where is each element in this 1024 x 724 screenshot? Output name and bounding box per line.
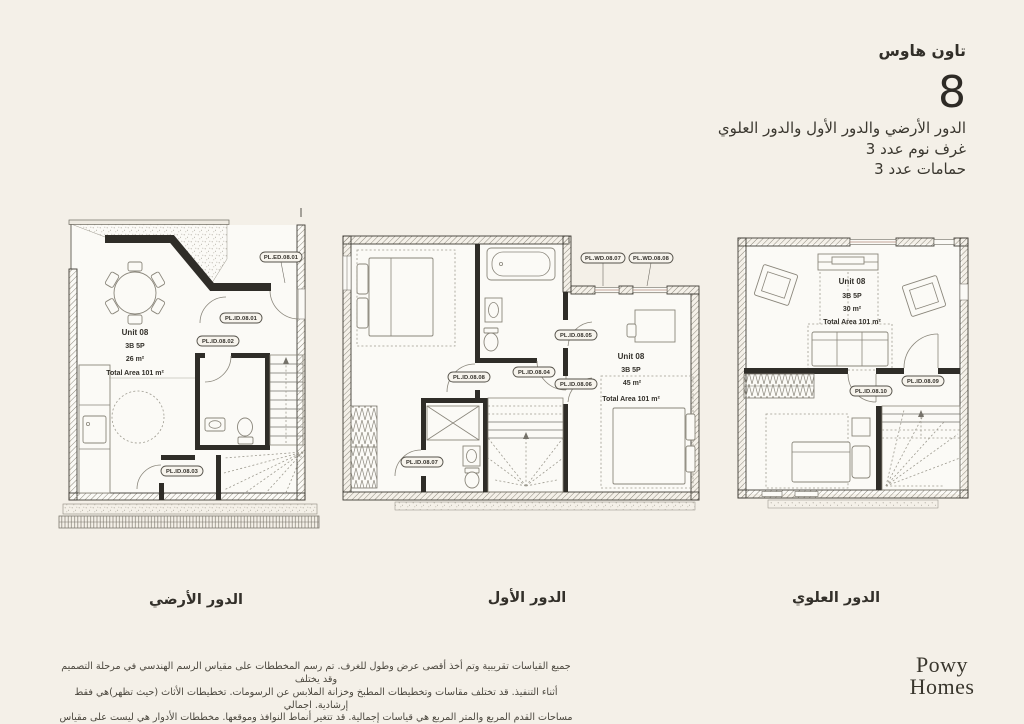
unit-total-area-text: Total Area 101 m²: [602, 396, 660, 403]
svg-text:PL.ID.08.03: PL.ID.08.03: [166, 469, 199, 475]
ground-floor-plan: Unit 08 3B 5P 26 m² Total Area 101 m² PL…: [57, 205, 322, 530]
unit-type-text: 3B 5P: [125, 343, 145, 350]
disclaimer-text: جميع القياسات تقريبية وتم أخذ أقصى عرض و…: [57, 661, 575, 724]
unit-area-text: 45 m²: [623, 380, 642, 387]
svg-text:PL.ID.08.02: PL.ID.08.02: [202, 339, 234, 345]
svg-text:PL.ID.08.04: PL.ID.08.04: [518, 370, 551, 376]
svg-text:PL.ID.08.06: PL.ID.08.06: [560, 382, 593, 388]
disclaimer-line-3: مساحات القدم المربع والمتر المربع هي قيا…: [57, 712, 575, 724]
floor-label-ground: الدور الأرضي: [111, 592, 281, 608]
svg-text:PL.WD.08.07: PL.WD.08.07: [585, 256, 621, 262]
unit-floors-line: الدور الأرضي والدور الأول والدور العلوي: [718, 118, 966, 139]
unit-area-text: 26 m²: [126, 356, 145, 363]
unit-type-text: 3B 5P: [842, 293, 862, 300]
unit-bedrooms-line: غرف نوم عدد 3: [718, 139, 966, 160]
door-tag: PL.ID.08.04: [513, 367, 555, 377]
door-tag: PL.ID.08.01: [220, 313, 262, 323]
logo-line-1: Powy: [886, 654, 998, 676]
floor-label-upper: الدور العلوي: [751, 590, 921, 606]
window-tag: PL.WD.08.07: [581, 253, 625, 286]
disclaimer-line-2: أثناء التنفيذ. قد تختلف مقاسات وتخطيطات …: [57, 687, 575, 713]
svg-text:PL.ID.08.05: PL.ID.08.05: [560, 333, 593, 339]
unit-type-text: 3B 5P: [621, 367, 641, 374]
first-floor-plan: Unit 08 3B 5P 45 m² Total Area 101 m² PL…: [335, 228, 718, 512]
svg-text:PL.ID.08.07: PL.ID.08.07: [406, 460, 438, 466]
unit-total-area-text: Total Area 101 m²: [823, 319, 881, 326]
unit-type-title: تاون هاوس: [718, 42, 966, 60]
door-tag: PL.ID.08.09: [902, 376, 944, 386]
powy-homes-logo: Powy Homes: [886, 654, 998, 698]
stipple-strip: [395, 502, 695, 510]
unit-id-text: Unit 08: [839, 277, 866, 286]
door-tag: PL.ID.08.05: [555, 330, 597, 340]
door-tag: PL.ID.08.02: [197, 336, 239, 346]
wardrobe: [744, 374, 814, 398]
door-tag: PL.ID.08.10: [850, 386, 892, 396]
door-tag: PL.ID.08.03: [161, 466, 203, 476]
disclaimer-line-1: جميع القياسات تقريبية وتم أخذ أقصى عرض و…: [57, 661, 575, 687]
logo-line-2: Homes: [886, 676, 998, 698]
upper-floor-plan: Unit 08 3B 5P 30 m² Total Area 101 m²: [728, 228, 978, 512]
door-tag: PL.ID.08.07: [401, 457, 443, 467]
brochure-page: تاون هاوس 8 الدور الأرضي والدور الأول وا…: [0, 0, 1024, 724]
unit-number: 8: [718, 71, 966, 115]
tv-console: [818, 254, 878, 270]
svg-text:PL.ID.08.01: PL.ID.08.01: [225, 316, 258, 322]
unit-header: تاون هاوس 8 الدور الأرضي والدور الأول وا…: [718, 42, 966, 180]
terrace-deck-strip: [59, 504, 319, 528]
svg-text:PL.WD.08.08: PL.WD.08.08: [633, 256, 670, 262]
unit-bathrooms-line: حمامات عدد 3: [718, 159, 966, 180]
unit-total-area-text: Total Area 101 m²: [106, 370, 164, 377]
window-tag: PL.WD.08.08: [629, 253, 673, 286]
unit-id-text: Unit 08: [618, 352, 645, 361]
floor-label-first: الدور الأول: [442, 590, 612, 606]
svg-text:PL.ID.08.08: PL.ID.08.08: [453, 375, 486, 381]
unit-id-text: Unit 08: [122, 328, 149, 337]
stipple-strip: [768, 500, 938, 508]
svg-text:PL.ID.08.09: PL.ID.08.09: [907, 379, 940, 385]
svg-text:PL.ED.08.01: PL.ED.08.01: [264, 255, 299, 261]
svg-text:PL.ID.08.10: PL.ID.08.10: [855, 389, 887, 395]
unit-area-text: 30 m²: [843, 306, 862, 313]
door-tag: PL.ID.08.06: [555, 379, 597, 389]
wardrobe: [351, 406, 377, 488]
door-tag: PL.ID.08.08: [448, 372, 490, 382]
